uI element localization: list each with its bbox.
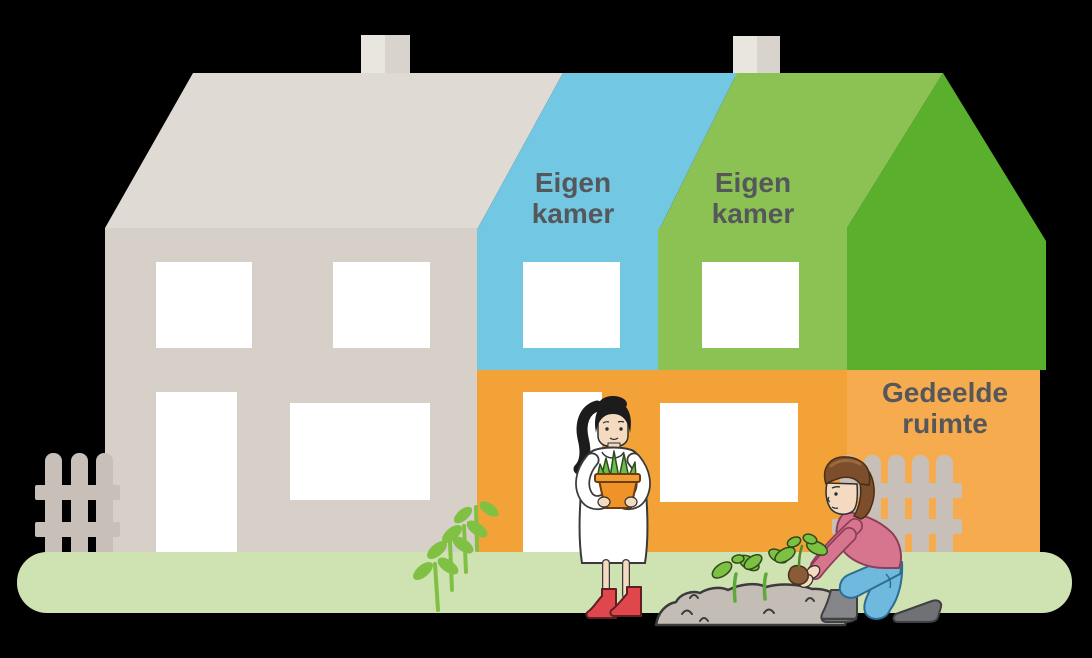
chimney-left — [361, 35, 410, 77]
hair-bun — [599, 396, 627, 412]
neighbor-upper-window-2 — [333, 262, 430, 348]
chimney-right — [733, 36, 780, 77]
shared-space-window — [660, 403, 798, 502]
picket-fence-left — [35, 453, 120, 560]
face-profile — [826, 483, 857, 514]
green-room-window — [702, 262, 799, 348]
shared-housing-illustration — [0, 0, 1092, 658]
flower-pot-rim — [595, 474, 640, 482]
grass-strip — [17, 552, 1072, 613]
neighbor-door — [156, 392, 237, 552]
neighbor-lower-window — [290, 403, 430, 500]
blue-room-window — [523, 262, 620, 348]
neighbor-upper-window-1 — [156, 262, 252, 348]
soil-root-ball — [789, 566, 809, 585]
illustration-stage: Eigen kamer Eigen kamer Gedeelde ruimte — [0, 0, 1092, 658]
